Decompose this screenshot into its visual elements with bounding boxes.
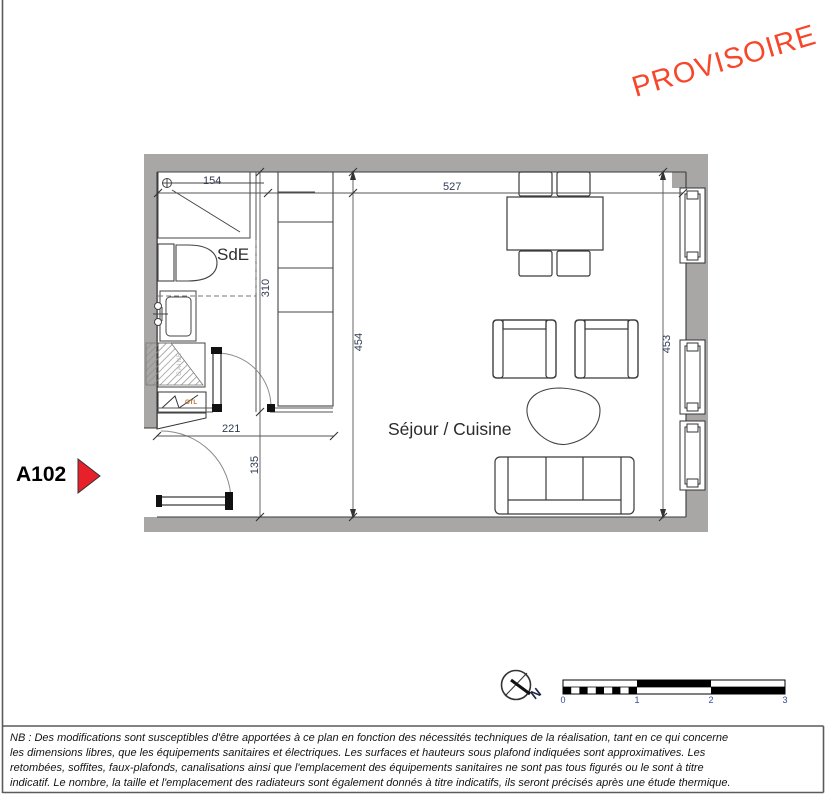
unit-number-label: A102: [16, 463, 66, 487]
dim-entry-depth: 135: [249, 450, 261, 480]
bathroom-door: [211, 347, 275, 412]
dim-bath-depth: 310: [260, 273, 272, 303]
dim-living-depth-left: 454: [353, 327, 365, 357]
dim-living-width: 527: [443, 181, 461, 193]
dim-entry-width: 221: [222, 423, 240, 435]
window-3: [680, 421, 705, 490]
sofa: [495, 457, 634, 514]
note-line-3: retombées, soffites, faux-plafonds, cana…: [10, 761, 810, 776]
unit-arrow-icon: [78, 459, 100, 493]
scale-tick-3: 3: [780, 695, 790, 705]
room-label-living: Séjour / Cuisine: [388, 419, 512, 440]
scale-bar: [563, 680, 785, 694]
window-1: [680, 188, 705, 263]
floor-plan-sheet: PROVISOIRE A102 SdE Séjour / Cuisine GAI…: [0, 0, 827, 800]
dim-living-depth-right: 453: [661, 329, 673, 359]
dim-shower-width: 154: [203, 175, 221, 187]
entrance-door: [156, 431, 233, 510]
window-2: [680, 340, 705, 414]
note-line-4: indicatif. Le nombre, la taille et l'emp…: [10, 776, 810, 791]
duct-label: GAINE: [176, 344, 184, 384]
note-line-2: les dimensions libres, que les équipemen…: [10, 746, 810, 761]
scale-tick-0: 0: [558, 695, 568, 705]
sink: [153, 291, 196, 341]
disclaimer-note: NB : Des modifications sont susceptibles…: [10, 731, 810, 791]
note-line-1: NB : Des modifications sont susceptibles…: [10, 731, 810, 746]
room-label-bathroom: SdE: [217, 245, 249, 265]
gtl-box: [157, 392, 206, 429]
gtl-label: GTL: [185, 400, 197, 406]
north-compass-icon: [502, 671, 531, 700]
coffee-table: [527, 388, 600, 445]
armchair-left: [493, 320, 556, 378]
closet: [278, 172, 333, 406]
floor-plan-drawing: [0, 0, 827, 800]
armchairs: [493, 320, 638, 378]
toilet: [158, 244, 217, 281]
armchair-right: [575, 320, 638, 378]
scale-tick-1: 1: [632, 695, 642, 705]
scale-tick-2: 2: [706, 695, 716, 705]
dining-set: [507, 172, 603, 276]
